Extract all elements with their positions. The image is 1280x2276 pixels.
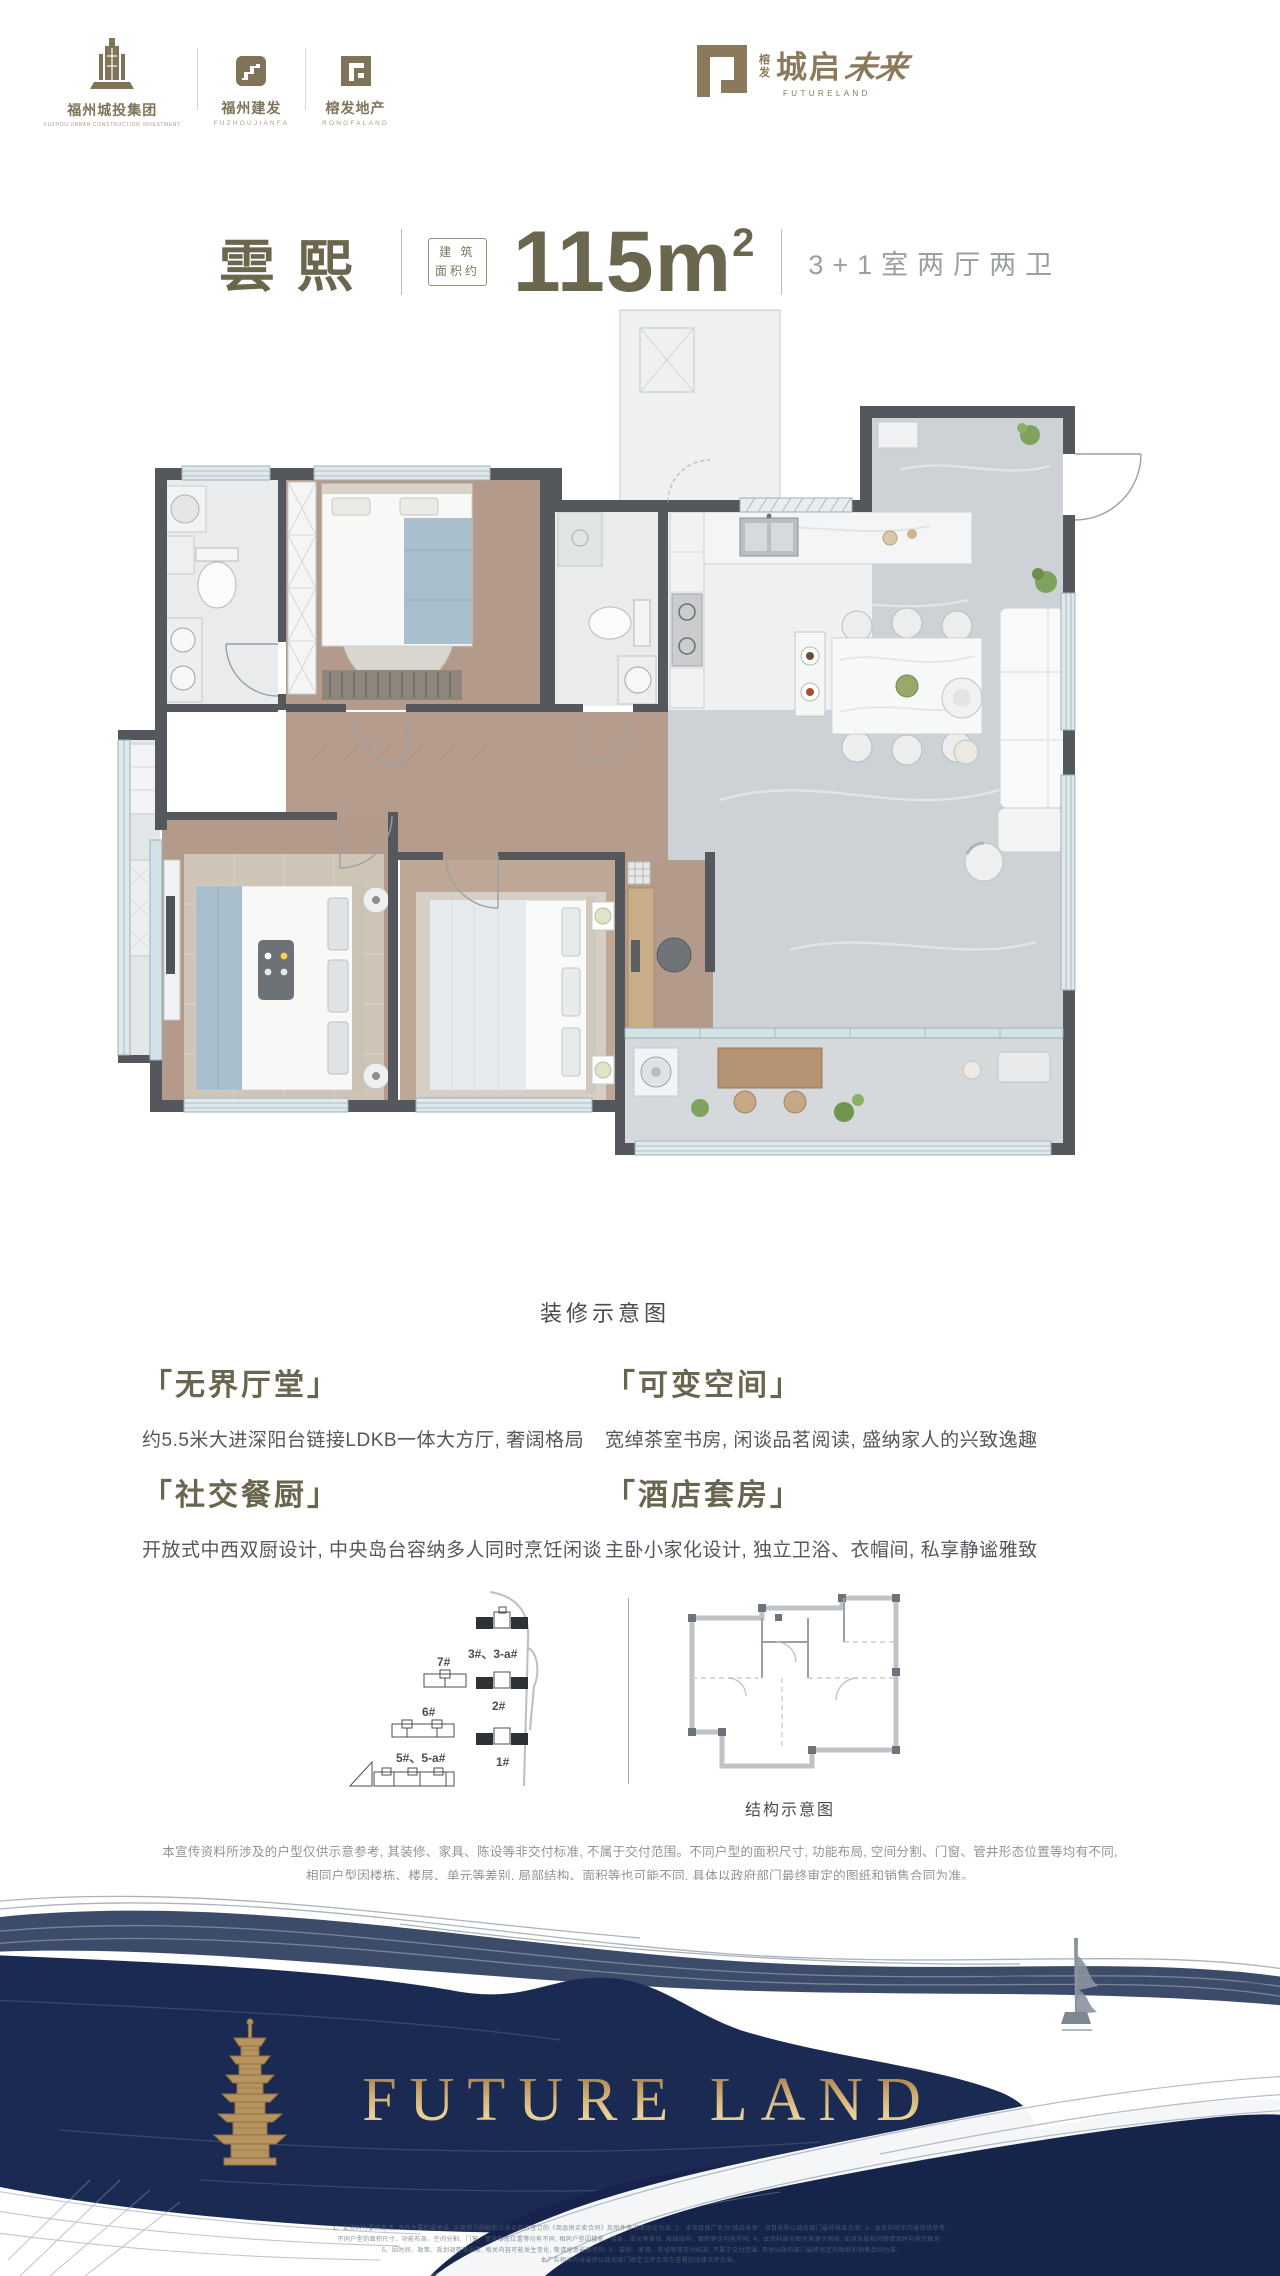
logo-subtitle: FUZHOUJIANFA <box>214 120 290 127</box>
feature-hall: 「无界厅堂」 约5.5米大进深阳台链接LDKB一体大方厅, 奢阔格局 <box>142 1360 584 1452</box>
feature-desc: 约5.5米大进深阳台链接LDKB一体大方厅, 奢阔格局 <box>142 1425 584 1452</box>
structure-diagram <box>658 1580 922 1794</box>
svg-text:6#: 6# <box>422 1705 436 1719</box>
feature-flex-space: 「可变空间」 宽绰茶室书房, 闲谈品茗阅读, 盛纳家人的兴致逸趣 <box>605 1360 1038 1452</box>
feature-title: 「社交餐厨」 <box>142 1470 602 1514</box>
feature-title: 「酒店套房」 <box>605 1470 1038 1514</box>
fine-print-line: 本广告相关内容最终以政府部门审定文件及双方签署的法律文件为准。 <box>190 2256 1090 2267</box>
fine-print-line: 1、本资料为要约邀请, 不作为要约或承诺, 买卖双方的权利义务以双方签订的《商品… <box>190 2224 1090 2235</box>
fine-print-line: 5、因时间、政策、规划调整等因素, 相关内容可能发生变化, 敬请留意最新资料; … <box>190 2246 1090 2257</box>
svg-text:5#、5-a#: 5#、5-a# <box>396 1751 446 1765</box>
logo-rongfa-land: 榕发地产 RONGFALAND <box>322 36 389 128</box>
logo-fuzhou-jianfa: 福州建发 FUZHOUJIANFA <box>214 36 290 128</box>
logo-name: 榕发地产 <box>326 98 386 118</box>
logo-divider <box>305 48 306 110</box>
poster: 福州城投集团 FUZHOU URBAN CONSTRUCTION INVESTM… <box>0 0 1280 2276</box>
futureland-logo-icon <box>694 42 750 105</box>
logo-fuzhou-chengtou: 福州城投集团 FUZHOU URBAN CONSTRUCTION INVESTM… <box>44 36 181 128</box>
feature-suite: 「酒店套房」 主卧小家化设计, 独立卫浴、衣帽间, 私享静谧雅致 <box>605 1470 1038 1562</box>
unit-name: 雲熙 <box>219 222 375 303</box>
feature-title: 「可变空间」 <box>605 1360 1038 1404</box>
svg-text:2#: 2# <box>492 1699 506 1713</box>
ink-wash-art: FUTURE LAND <box>0 1880 1280 2276</box>
diagram-divider <box>628 1598 629 1784</box>
square-f-logo-icon <box>339 36 373 95</box>
logo-name: 福州城投集团 <box>67 100 157 120</box>
logo-futureland: 榕 发 城启 未来 FUTURELAND <box>694 42 908 105</box>
logo-group-left: 福州城投集团 FUZHOU URBAN CONSTRUCTION INVESTM… <box>44 36 389 128</box>
feature-kitchen: 「社交餐厨」 开放式中西双厨设计, 中央岛台容纳多人同时烹饪闲谈 <box>142 1470 602 1562</box>
svg-text:3#、3-a#: 3#、3-a# <box>468 1647 518 1661</box>
fine-print: 1、本资料为要约邀请, 不作为要约或承诺, 买卖双方的权利义务以双方签订的《商品… <box>190 2224 1090 2267</box>
plan-caption: 装修示意图 <box>0 1296 1210 1328</box>
logo-subtitle: RONGFALAND <box>322 120 389 127</box>
logo-prefix: 榕 发 <box>759 54 770 79</box>
logo-name: 福州建发 <box>221 98 281 118</box>
logo-subtitle: FUZHOU URBAN CONSTRUCTION INVESTMENT <box>44 122 181 128</box>
feature-desc: 宽绰茶室书房, 闲谈品茗阅读, 盛纳家人的兴致逸趣 <box>605 1425 1038 1452</box>
structure-caption: 结构示意图 <box>658 1796 922 1820</box>
logo-stylized-text: 未来 <box>842 42 912 87</box>
stairs-logo-icon <box>234 36 268 95</box>
title-divider <box>781 229 782 295</box>
svg-text:7#: 7# <box>437 1655 451 1669</box>
layout-text: 3+1室两厅两卫 <box>808 243 1061 282</box>
title-row: 雲熙 建 筑 面积约 115m2 3+1室两厅两卫 <box>0 214 1280 310</box>
site-diagram: 3#、3-a# 7# 2# 6# <box>332 1586 550 1798</box>
feature-desc: 开放式中西双厨设计, 中央岛台容纳多人同时烹饪闲谈 <box>142 1535 602 1562</box>
logo-main-text: 城启 <box>776 42 842 87</box>
disclaimer-line: 本宣传资料所涉及的户型仅供示意参考, 其装修、家具、陈设等非交付标准, 不属于交… <box>100 1840 1180 1864</box>
floor-plan <box>100 300 1150 1170</box>
fine-print-line: 不同户型的面积尺寸、功能布局、空间分割、门窗、管井形态位置等均有不同, 相同户型… <box>190 2235 1090 2246</box>
area-value: 115m2 <box>513 219 755 305</box>
footer-art: FUTURE LAND 1、本资料为要约邀请, 不作为要约或承诺, 买卖双方的权… <box>0 1880 1280 2276</box>
title-divider <box>401 229 402 295</box>
feature-desc: 主卧小家化设计, 独立卫浴、衣帽间, 私享静谧雅致 <box>605 1535 1038 1562</box>
svg-text:1#: 1# <box>496 1755 510 1769</box>
brand-wordmark: FUTURE LAND <box>362 2066 934 2134</box>
logo-en-text: FUTURELAND <box>783 89 908 98</box>
tower-logo-icon <box>85 36 139 97</box>
feature-title: 「无界厅堂」 <box>142 1360 584 1404</box>
logo-divider <box>197 48 198 110</box>
area-tag: 建 筑 面积约 <box>428 238 487 285</box>
floor-plan-svg <box>100 300 1150 1170</box>
